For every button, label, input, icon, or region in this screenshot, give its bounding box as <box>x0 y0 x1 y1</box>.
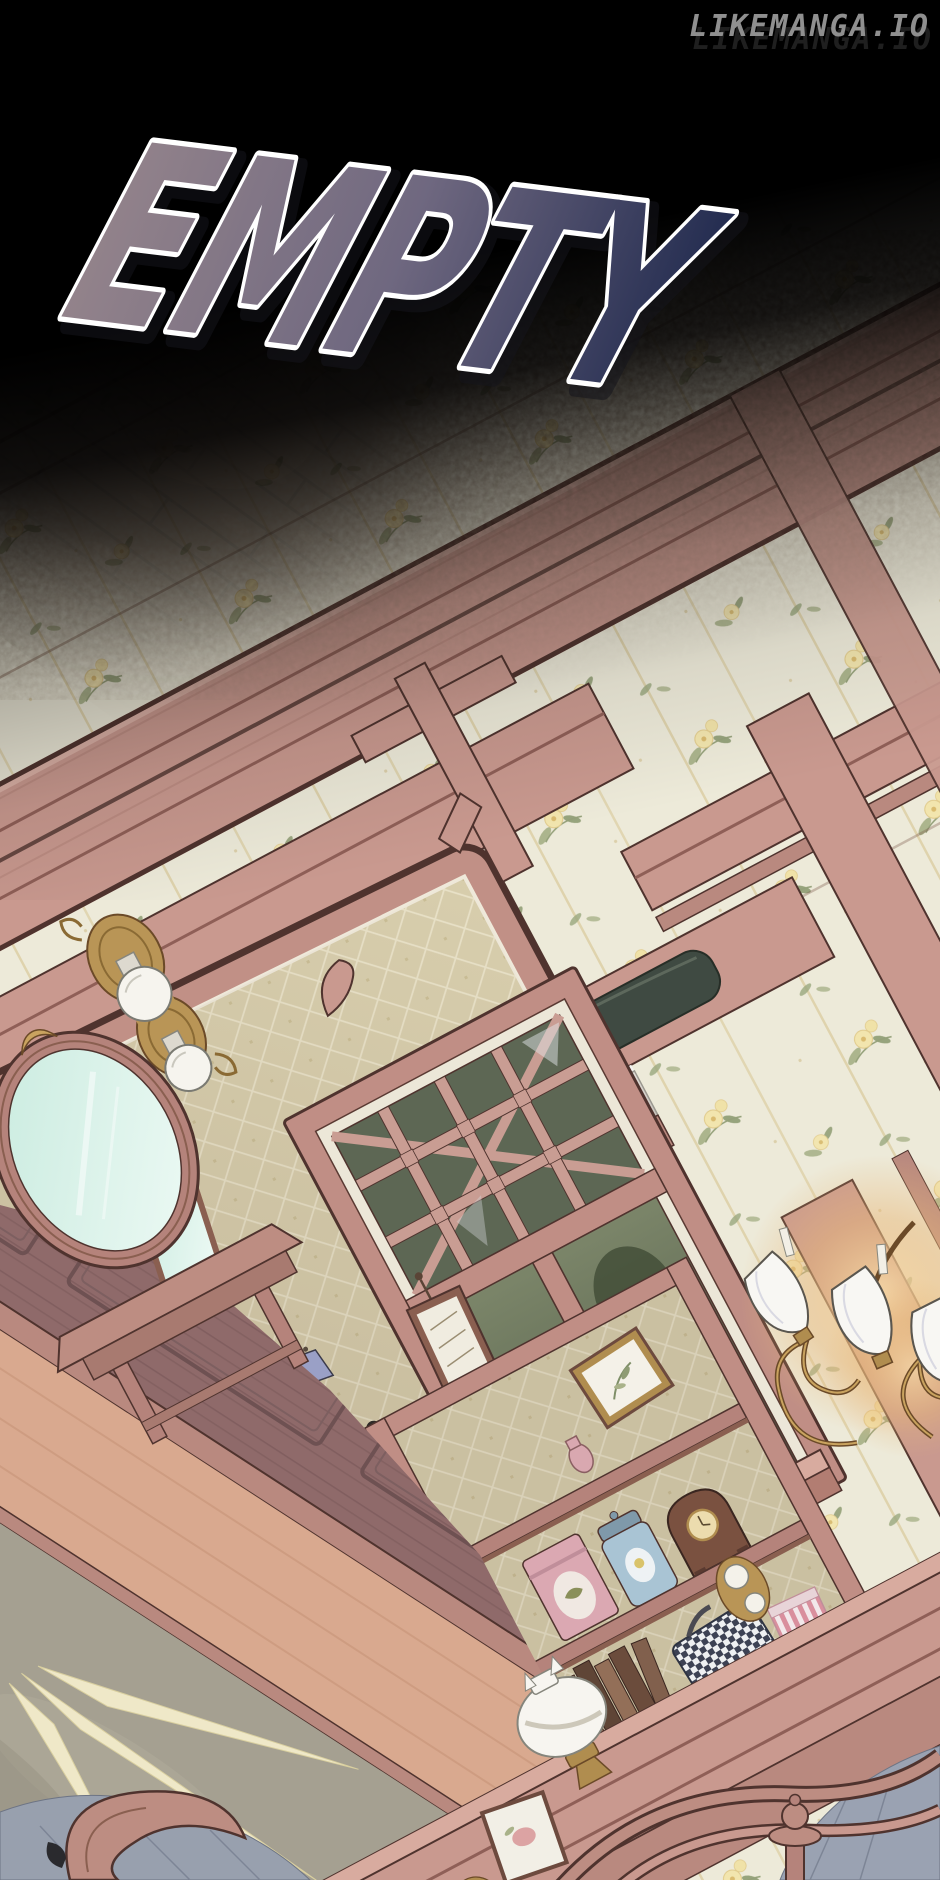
site-watermark: LIKEMANGA.IO LIKEMANGA.IO <box>689 9 933 57</box>
manga-panel-illustration: EMPTY EMPTY LIKEMANGA.IO LIKEMANGA.IO <box>0 0 940 1880</box>
manga-page: EMPTY EMPTY LIKEMANGA.IO LIKEMANGA.IO <box>0 0 940 1880</box>
watermark-text: LIKEMANGA.IO <box>689 9 930 44</box>
